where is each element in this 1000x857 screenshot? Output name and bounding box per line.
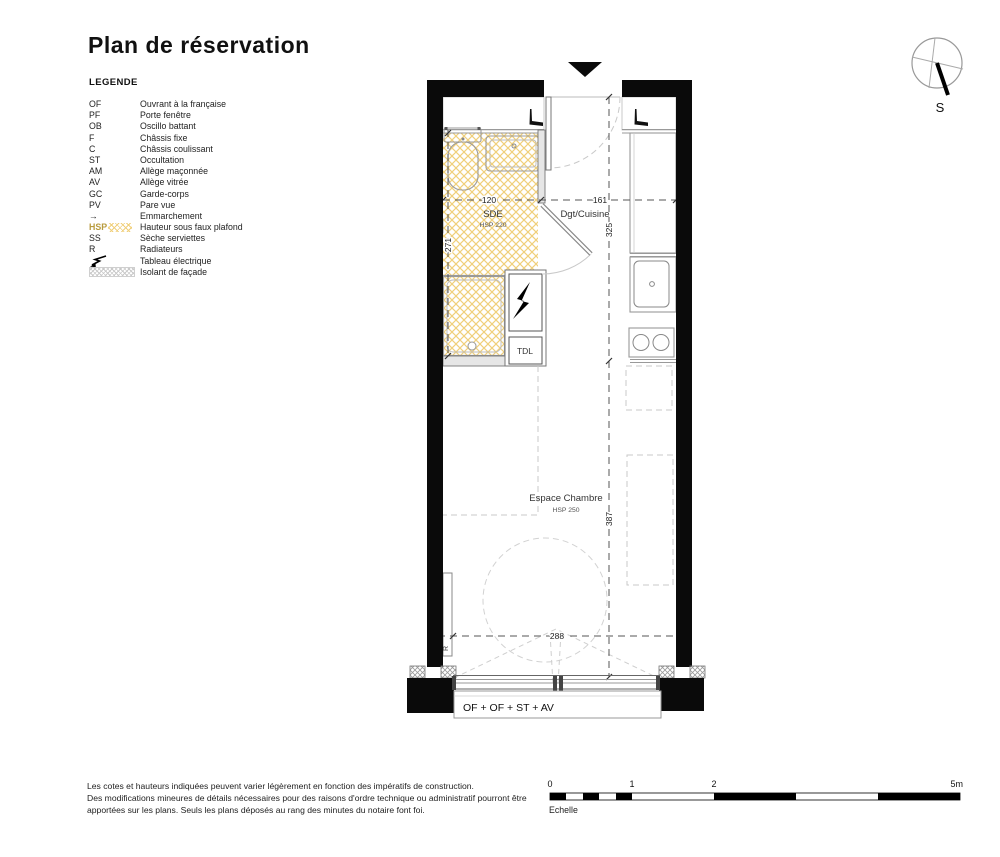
disclaimer-line: Des modifications mineures de détails né…	[87, 792, 527, 804]
dim-window-span: 288	[550, 631, 564, 641]
window-mullion-hardware	[553, 676, 557, 692]
soffit-band-right	[622, 97, 676, 133]
window-bay-label: OF + OF + ST + AV	[463, 702, 554, 714]
scale-caption: Echelle	[549, 805, 578, 815]
dim-sde-depth: 271	[443, 238, 453, 252]
room-label-chambre: Espace Chambre	[529, 493, 602, 504]
radiator-label: R	[443, 646, 450, 651]
dim-dgt-depth: 325	[604, 223, 614, 237]
floor-plan-drawing: TDL	[0, 0, 1000, 857]
plan-page: Plan de réservation LEGENDE OFOuvrant à …	[0, 0, 1000, 857]
future-furniture-zone	[626, 366, 672, 410]
burner	[633, 335, 649, 351]
radiator: R	[443, 573, 452, 656]
dim-sde-width: 120	[482, 195, 496, 205]
window-bay: OF + OF + ST + AV	[452, 676, 661, 719]
wall-pier-bottom-right	[659, 678, 704, 711]
dim-dgt-width: 161	[593, 195, 607, 205]
wall-pier-bottom-left	[407, 678, 454, 713]
scale-tick-5m: 5m	[950, 779, 963, 789]
disclaimer-line: Les cotes et hauteurs indiquées peuvent …	[87, 780, 527, 792]
door-leaf	[546, 97, 551, 170]
clearance-circle	[483, 538, 607, 662]
window-jamb-hardware	[452, 676, 456, 690]
scale-tick-1: 1	[629, 779, 634, 789]
sde-partition-wall	[538, 130, 545, 203]
burner	[653, 335, 669, 351]
future-wardrobe-zone	[627, 455, 673, 585]
disclaimer: Les cotes et hauteurs indiquées peuvent …	[87, 780, 527, 816]
dim-chambre-depth: 387	[604, 512, 614, 526]
scale-tick-0: 0	[547, 779, 552, 789]
electrical-niche: TDL	[505, 270, 546, 366]
compass: S	[912, 38, 963, 115]
window-jamb-hardware	[656, 676, 660, 690]
wall-right	[676, 80, 692, 667]
wall-left	[427, 80, 443, 667]
room-hsp-chambre: HSP 250	[552, 507, 579, 514]
door-swing-arc	[542, 254, 591, 274]
kitchen-sink	[634, 261, 669, 307]
tall-cabinet	[630, 133, 676, 253]
compass-needle	[937, 63, 948, 95]
disclaimer-line: apportées sur les plans. Seuls les plans…	[87, 804, 527, 816]
wall-top-left	[427, 80, 544, 97]
entrance-arrow-icon	[568, 62, 602, 77]
room-label-sde: SDE	[483, 209, 503, 220]
scale-bar: 0 1 2 5m Echelle	[547, 779, 963, 815]
chambre-zone-boundary	[443, 366, 538, 515]
compass-south-label: S	[936, 100, 945, 115]
tdl-label: TDL	[517, 346, 533, 356]
scale-tick-2: 2	[711, 779, 716, 789]
room-hsp-sde: HSP 220	[479, 222, 506, 229]
window-mullion-hardware	[559, 676, 563, 692]
room-label-dgt-cuisine: Dgt/Cuisine	[560, 209, 609, 220]
kitchen-units	[626, 133, 676, 585]
